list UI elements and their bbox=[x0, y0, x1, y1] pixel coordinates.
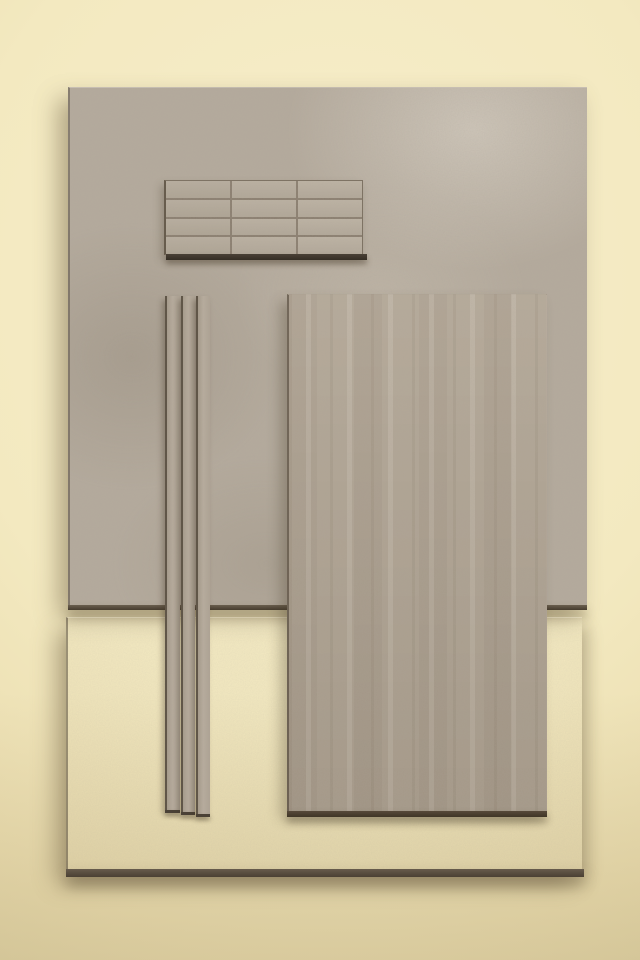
vertical-field-tile bbox=[287, 294, 547, 811]
stone-grain-texture bbox=[198, 296, 210, 814]
mosaic-cell bbox=[298, 237, 362, 254]
mosaic-cell bbox=[232, 237, 296, 254]
mosaic-cell bbox=[232, 181, 296, 198]
mosaic-cell bbox=[166, 219, 230, 236]
mosaic-cell bbox=[166, 200, 230, 217]
mosaic-cell bbox=[298, 219, 362, 236]
mosaic-cell bbox=[298, 181, 362, 198]
brick-mosaic-tile bbox=[164, 180, 363, 255]
mosaic-cell bbox=[166, 237, 230, 254]
stone-grain-texture bbox=[183, 296, 195, 812]
mosaic-cell bbox=[298, 200, 362, 217]
tile-flatlay-photo bbox=[0, 0, 640, 960]
mosaic-cell bbox=[166, 181, 230, 198]
mosaic-cell bbox=[232, 200, 296, 217]
pencil-liner-tile-3 bbox=[196, 296, 210, 814]
pencil-liner-tile-1 bbox=[165, 296, 180, 810]
pencil-liner-tile-2 bbox=[181, 296, 195, 812]
mosaic-cell bbox=[232, 219, 296, 236]
stone-grain-texture bbox=[289, 295, 546, 811]
stone-grain-texture bbox=[167, 296, 180, 810]
